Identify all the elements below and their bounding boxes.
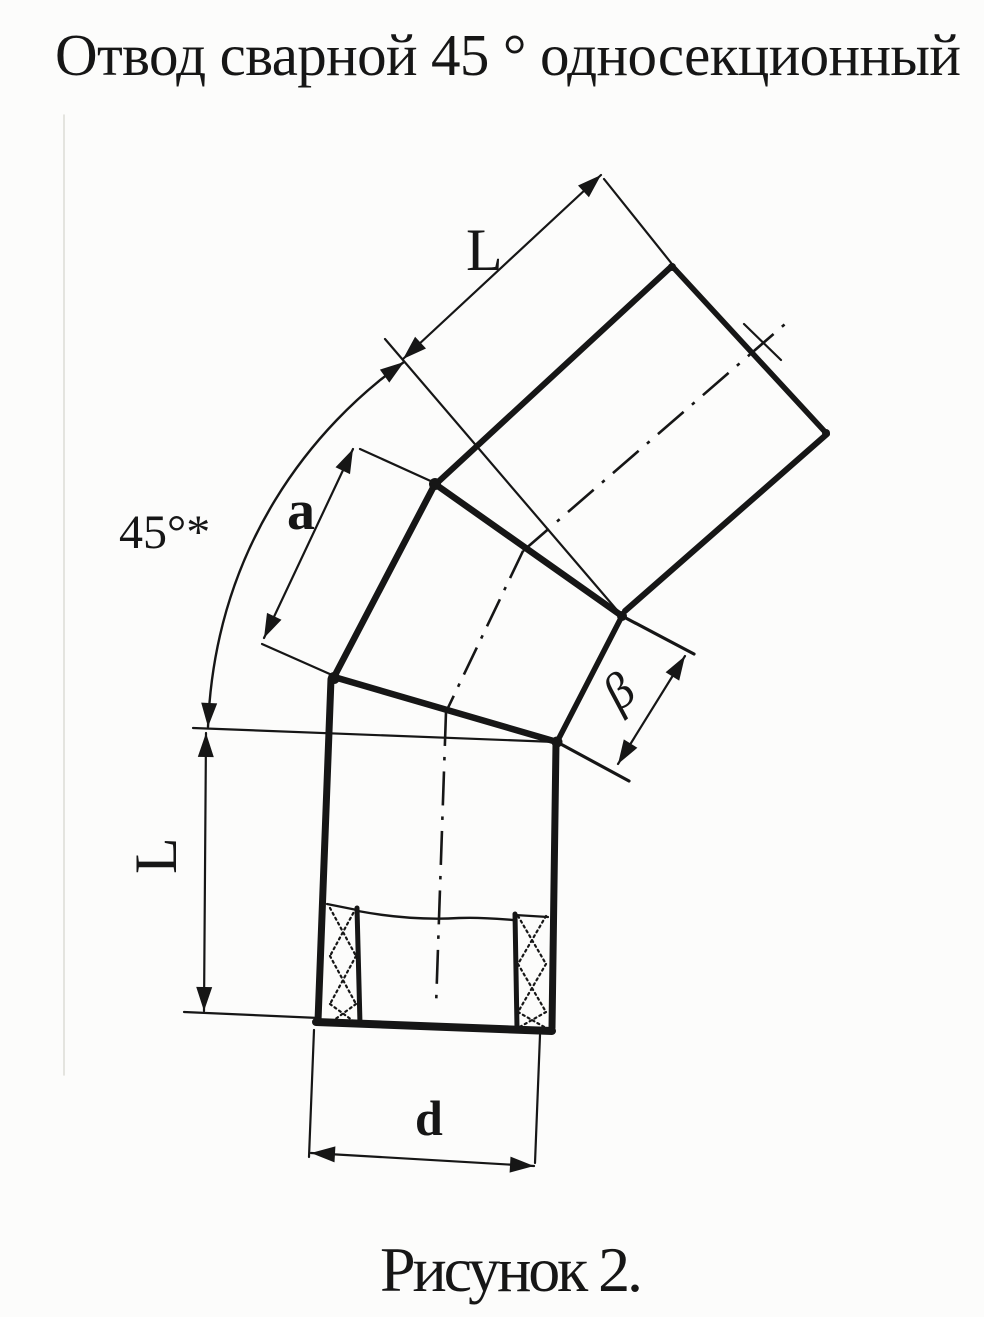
svg-text:L: L bbox=[466, 217, 503, 283]
svg-text:d: d bbox=[415, 1090, 443, 1146]
svg-text:Отвод сварной 45 ° односекцион: Отвод сварной 45 ° односекционный bbox=[55, 22, 961, 88]
svg-text:45°*: 45°* bbox=[119, 506, 210, 559]
svg-text:Рисунок 2.: Рисунок 2. bbox=[380, 1234, 643, 1305]
svg-text:L: L bbox=[123, 837, 189, 874]
svg-text:β: β bbox=[591, 661, 646, 721]
svg-text:a: a bbox=[287, 480, 315, 542]
